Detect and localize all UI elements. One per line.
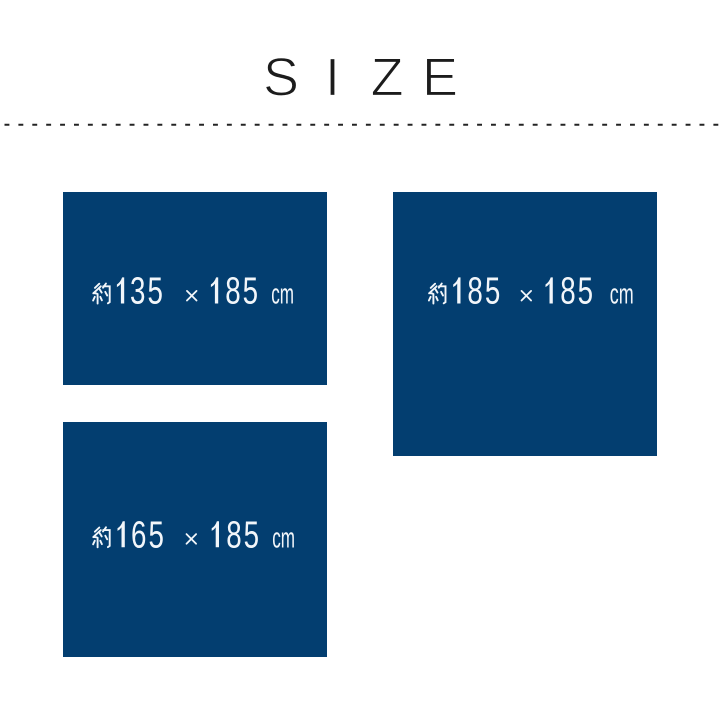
svg-text:85: 85 (226, 514, 261, 556)
svg-text:cm: cm (271, 278, 294, 310)
svg-text:65: 65 (131, 514, 166, 556)
svg-text:cm: cm (272, 522, 295, 554)
svg-text:S: S (263, 48, 299, 108)
svg-text:85: 85 (467, 270, 502, 312)
svg-text:cm: cm (610, 278, 634, 310)
svg-text:I: I (325, 48, 340, 108)
svg-text:Z: Z (371, 48, 404, 108)
svg-text:E: E (422, 48, 458, 108)
svg-text:35: 35 (130, 270, 165, 312)
svg-text:85: 85 (225, 270, 260, 312)
svg-text:85: 85 (560, 270, 595, 312)
